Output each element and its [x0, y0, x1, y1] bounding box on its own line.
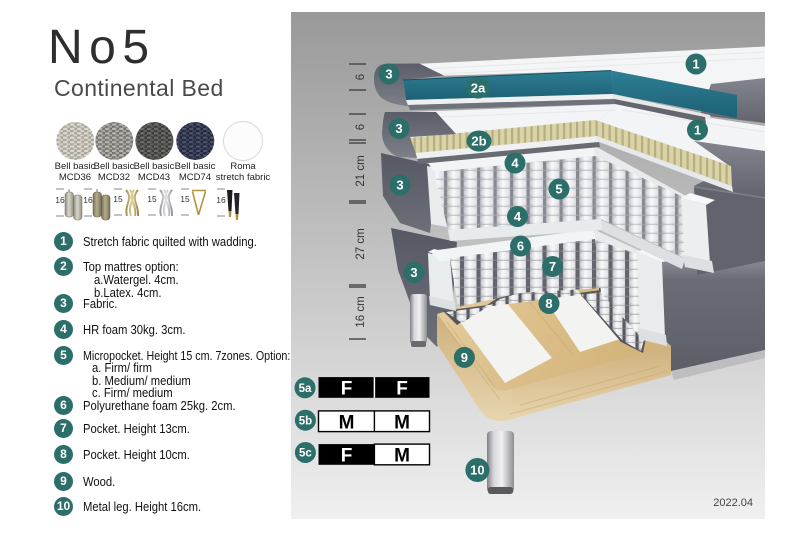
svg-text:5a: 5a — [299, 383, 312, 395]
svg-text:2022.04: 2022.04 — [713, 497, 753, 509]
svg-text:1: 1 — [692, 57, 699, 72]
svg-text:3: 3 — [385, 67, 392, 82]
svg-text:3: 3 — [396, 178, 403, 193]
svg-text:1: 1 — [694, 123, 701, 138]
svg-text:3: 3 — [395, 121, 402, 136]
svg-text:27 cm: 27 cm — [355, 228, 367, 259]
svg-text:5: 5 — [555, 182, 562, 197]
svg-text:3: 3 — [410, 265, 417, 280]
svg-text:2a: 2a — [471, 81, 486, 96]
svg-text:6: 6 — [517, 239, 524, 254]
svg-text:2b: 2b — [471, 134, 486, 149]
svg-text:4: 4 — [514, 209, 522, 224]
svg-text:8: 8 — [545, 296, 552, 311]
svg-text:6: 6 — [355, 124, 367, 130]
svg-text:6: 6 — [355, 74, 367, 80]
svg-text:5c: 5c — [299, 448, 312, 460]
svg-text:M: M — [394, 412, 410, 433]
svg-text:F: F — [341, 446, 353, 467]
svg-text:16 cm: 16 cm — [355, 296, 367, 327]
svg-text:9: 9 — [461, 350, 468, 365]
svg-text:4: 4 — [511, 156, 519, 171]
svg-text:M: M — [339, 412, 355, 433]
svg-text:F: F — [396, 379, 408, 400]
svg-text:7: 7 — [549, 259, 556, 274]
svg-text:5b: 5b — [299, 415, 312, 427]
svg-text:21 cm: 21 cm — [355, 155, 367, 186]
svg-text:10: 10 — [470, 463, 484, 478]
svg-text:M: M — [394, 446, 410, 467]
svg-text:F: F — [341, 379, 353, 400]
